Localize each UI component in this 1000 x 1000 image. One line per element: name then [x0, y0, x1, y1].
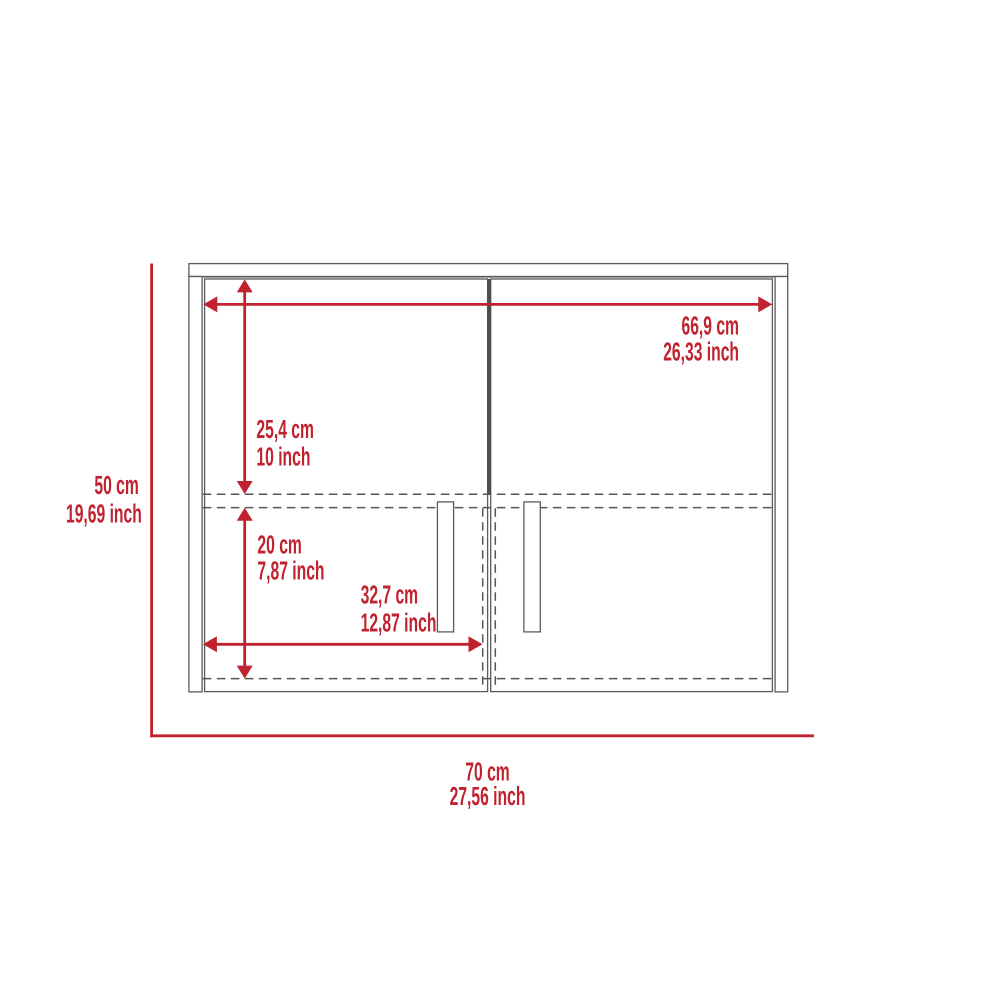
- svg-text:26,33 inch: 26,33 inch: [663, 339, 739, 367]
- svg-text:10 inch: 10 inch: [256, 444, 310, 472]
- svg-text:50 cm: 50 cm: [94, 473, 138, 501]
- svg-text:25,4 cm: 25,4 cm: [256, 416, 314, 444]
- svg-text:66,9 cm: 66,9 cm: [681, 313, 739, 341]
- svg-text:19,69 inch: 19,69 inch: [66, 501, 142, 529]
- svg-text:7,87 inch: 7,87 inch: [257, 558, 324, 586]
- svg-text:12,87 inch: 12,87 inch: [361, 610, 437, 638]
- svg-text:27,56 inch: 27,56 inch: [450, 783, 526, 811]
- svg-text:20 cm: 20 cm: [257, 532, 301, 560]
- svg-text:32,7 cm: 32,7 cm: [361, 582, 419, 610]
